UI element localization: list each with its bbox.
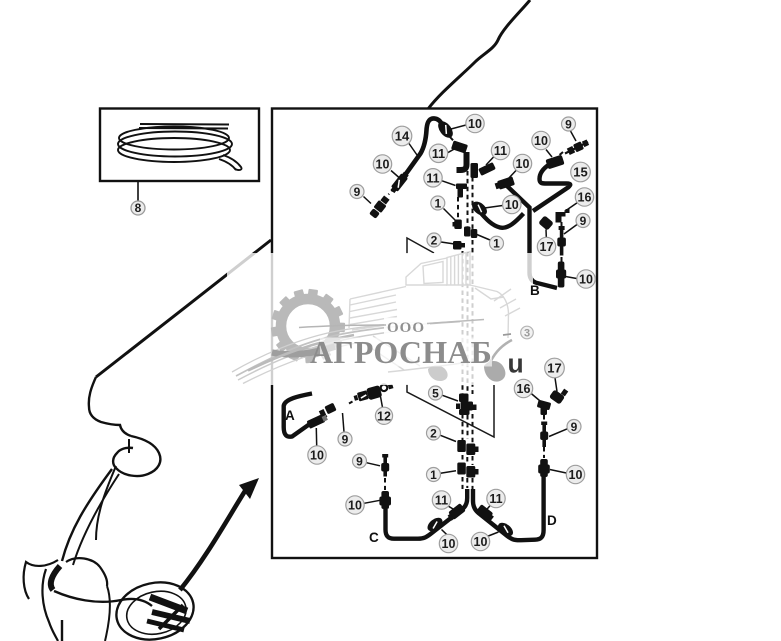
svg-text:1: 1 bbox=[493, 237, 500, 251]
svg-text:11: 11 bbox=[494, 144, 507, 158]
svg-text:14: 14 bbox=[395, 129, 410, 144]
svg-text:10: 10 bbox=[376, 158, 390, 172]
svg-text:9: 9 bbox=[342, 432, 349, 446]
svg-text:u: u bbox=[508, 349, 524, 379]
svg-text:17: 17 bbox=[547, 361, 561, 376]
svg-text:16: 16 bbox=[578, 191, 592, 205]
svg-text:10: 10 bbox=[505, 198, 519, 212]
svg-text:C: C bbox=[369, 530, 379, 545]
svg-text:10: 10 bbox=[468, 117, 482, 131]
svg-text:11: 11 bbox=[435, 494, 448, 508]
svg-text:11: 11 bbox=[489, 492, 502, 506]
svg-text:10: 10 bbox=[442, 537, 456, 551]
svg-text:11: 11 bbox=[432, 147, 445, 161]
svg-text:9: 9 bbox=[356, 454, 363, 468]
svg-text:10: 10 bbox=[579, 273, 593, 287]
svg-text:A: A bbox=[285, 408, 295, 423]
svg-text:1: 1 bbox=[430, 468, 437, 482]
svg-text:16: 16 bbox=[517, 382, 531, 396]
svg-text:D: D bbox=[547, 513, 557, 528]
svg-text:5: 5 bbox=[432, 386, 439, 400]
svg-text:9: 9 bbox=[565, 117, 572, 131]
svg-text:3: 3 bbox=[524, 328, 530, 340]
svg-text:15: 15 bbox=[573, 165, 587, 180]
svg-text:10: 10 bbox=[534, 134, 548, 148]
svg-text:12: 12 bbox=[377, 409, 391, 423]
svg-text:2: 2 bbox=[431, 233, 438, 247]
svg-text:1: 1 bbox=[434, 196, 441, 210]
svg-text:10: 10 bbox=[310, 449, 324, 463]
svg-text:10: 10 bbox=[569, 468, 583, 482]
svg-text:10: 10 bbox=[474, 535, 488, 549]
svg-text:11: 11 bbox=[426, 171, 439, 185]
svg-text:B: B bbox=[530, 283, 540, 298]
svg-text:9: 9 bbox=[354, 185, 361, 199]
svg-text:8: 8 bbox=[135, 201, 142, 215]
svg-text:17: 17 bbox=[540, 240, 554, 254]
svg-text:10: 10 bbox=[516, 157, 530, 171]
svg-text:2: 2 bbox=[430, 426, 437, 440]
svg-text:9: 9 bbox=[571, 420, 578, 434]
svg-text:10: 10 bbox=[348, 499, 362, 513]
svg-text:9: 9 bbox=[580, 214, 587, 228]
svg-text:АГРОСНАБ: АГРОСНАБ bbox=[310, 334, 492, 370]
